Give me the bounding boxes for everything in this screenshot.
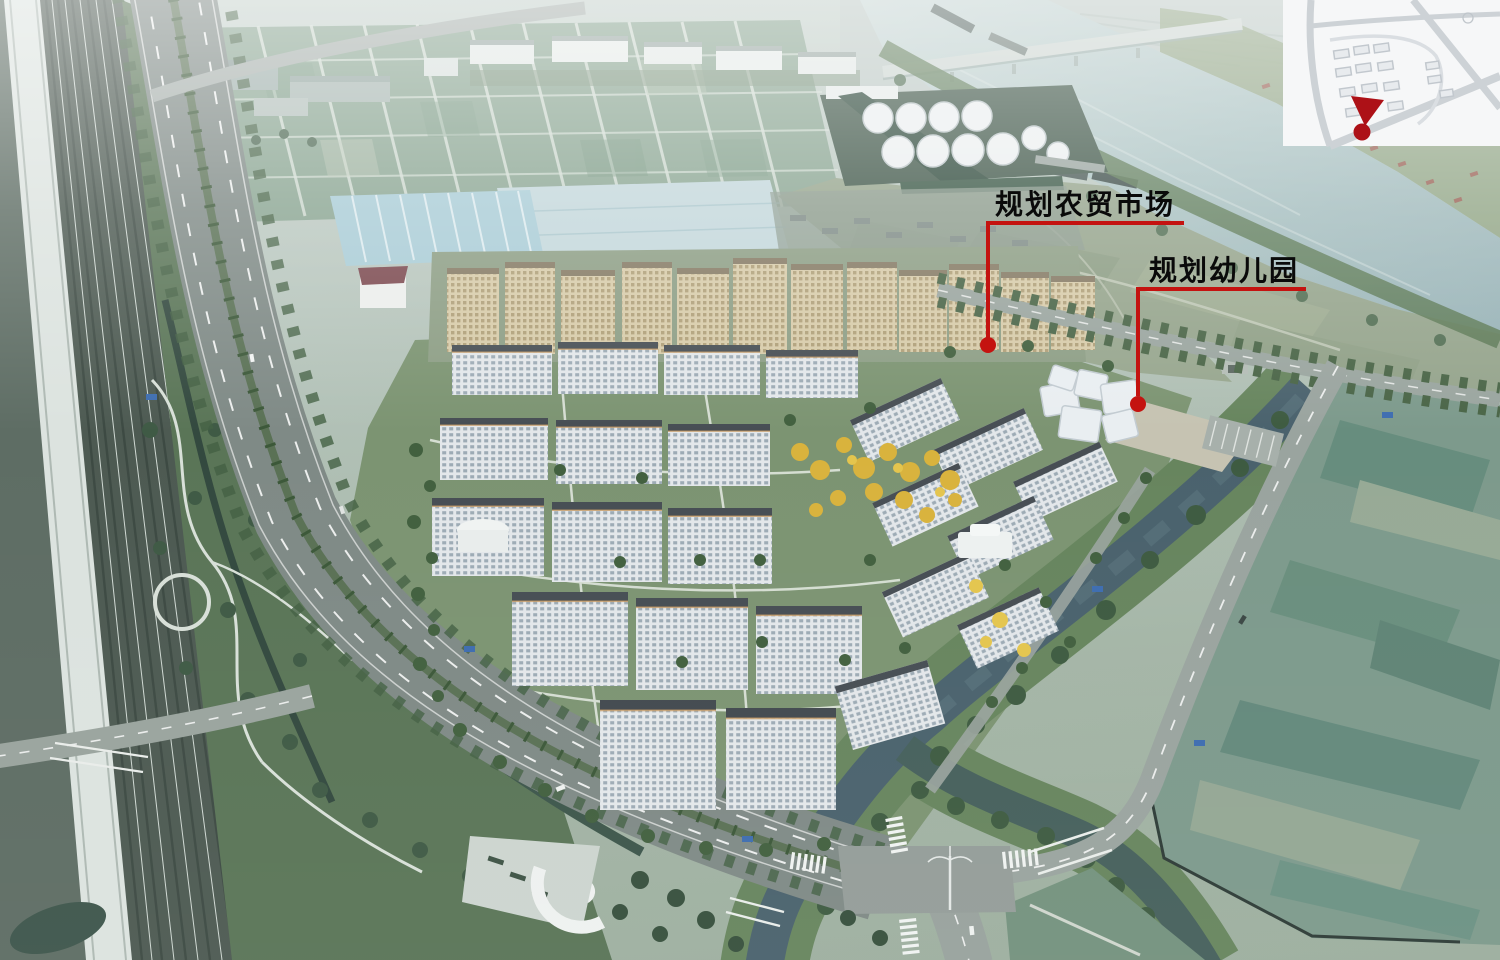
annotation-kindergarten-label: 规划幼儿园 [1149,256,1299,285]
annotation-underline [986,221,1184,225]
scene-canvas [0,0,1500,960]
annotation-marker-dot [1130,396,1146,412]
annotation-underline [1136,287,1306,291]
annotation-farmers-market-label: 规划农贸市场 [995,190,1175,219]
haze-overlay [0,0,1500,960]
annotation-marker-dot [980,337,996,353]
aerial-masterplan-rendering: 规划农贸市场 规划幼儿园 [0,0,1500,960]
inset-locator-map [1283,0,1500,146]
annotation-leader-line [1136,287,1140,396]
annotation-leader-line [986,221,990,339]
